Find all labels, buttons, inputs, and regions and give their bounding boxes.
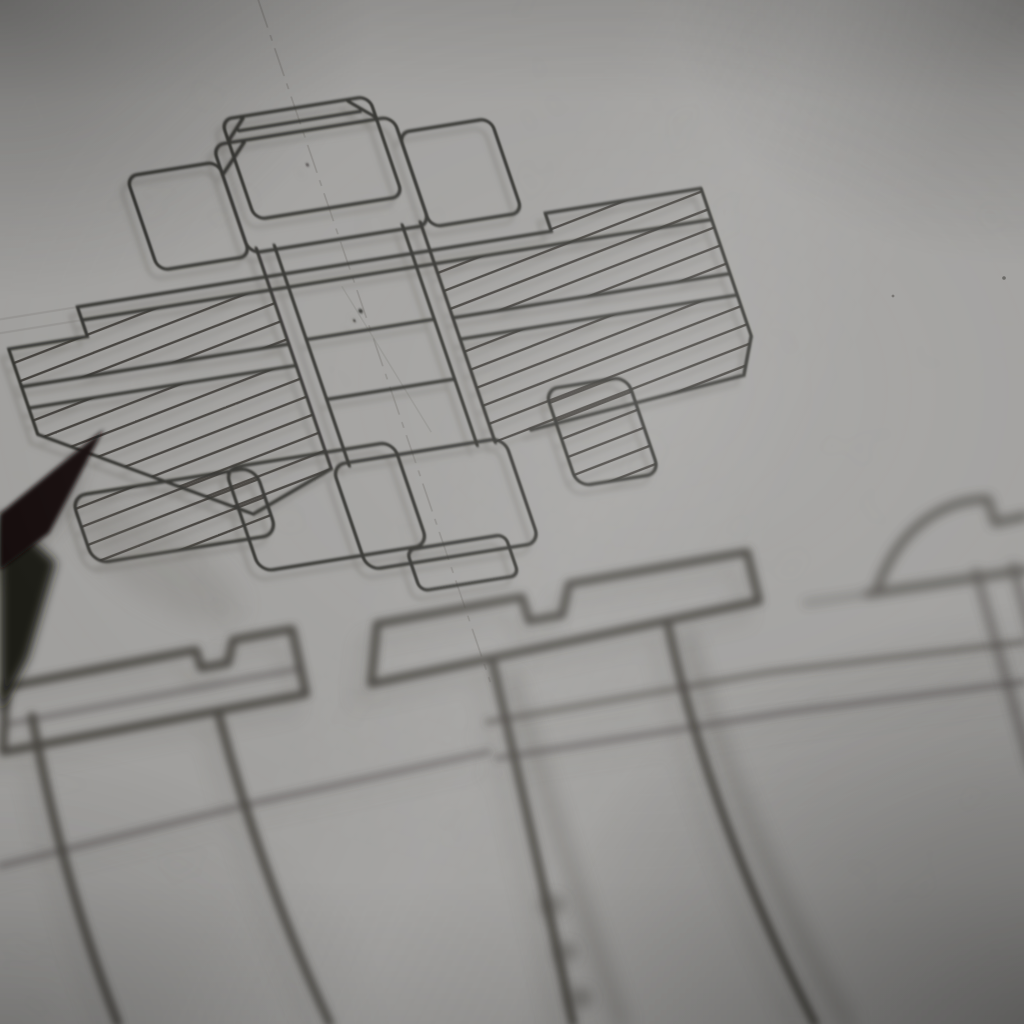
smudge-blob bbox=[539, 895, 565, 915]
paper-grain-mottle bbox=[0, 0, 1024, 1024]
paper-speck bbox=[892, 295, 895, 298]
smudge-blob bbox=[568, 988, 592, 1008]
smudge-blob bbox=[555, 943, 577, 961]
photo-canvas bbox=[0, 0, 1024, 1024]
paper-speck bbox=[1002, 276, 1006, 280]
